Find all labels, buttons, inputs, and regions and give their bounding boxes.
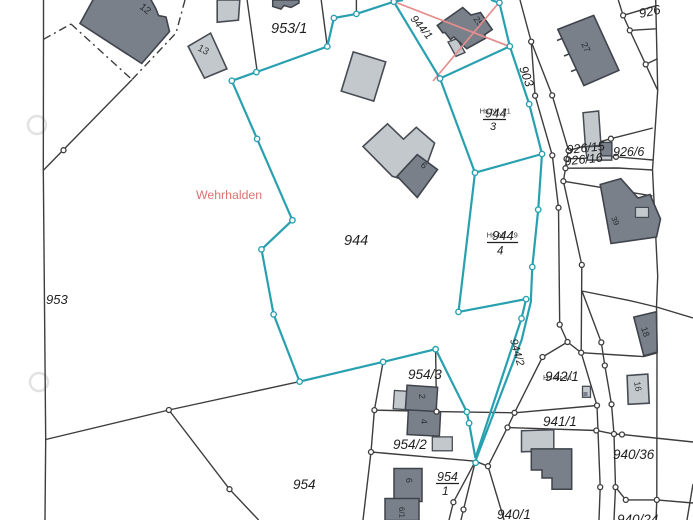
svg-text:954: 954 <box>293 477 316 492</box>
svg-text:4: 4 <box>497 246 503 258</box>
svg-text:6: 6 <box>404 478 414 483</box>
svg-text:2: 2 <box>417 394 427 399</box>
svg-text:16: 16 <box>632 381 644 393</box>
svg-text:1: 1 <box>442 484 449 498</box>
svg-text:944: 944 <box>492 228 514 243</box>
svg-text:941/1: 941/1 <box>543 414 577 429</box>
svg-text:926/6: 926/6 <box>613 145 644 159</box>
svg-text:940/1: 940/1 <box>497 507 531 520</box>
svg-text:954: 954 <box>437 470 458 484</box>
svg-text:953/1: 953/1 <box>271 21 307 37</box>
svg-text:3: 3 <box>490 121 497 133</box>
svg-text:954/2: 954/2 <box>393 437 427 452</box>
svg-text:944: 944 <box>344 233 368 249</box>
svg-text:6/1: 6/1 <box>397 507 406 519</box>
svg-text:942/1: 942/1 <box>545 369 579 384</box>
svg-text:940/24: 940/24 <box>617 512 658 520</box>
svg-text:954/3: 954/3 <box>408 367 442 382</box>
svg-text:940/36: 940/36 <box>613 447 655 462</box>
svg-text:953: 953 <box>46 292 68 307</box>
svg-text:Wehrhalden: Wehrhalden <box>196 188 262 202</box>
svg-text:4: 4 <box>419 419 429 424</box>
svg-text:944: 944 <box>485 106 507 121</box>
